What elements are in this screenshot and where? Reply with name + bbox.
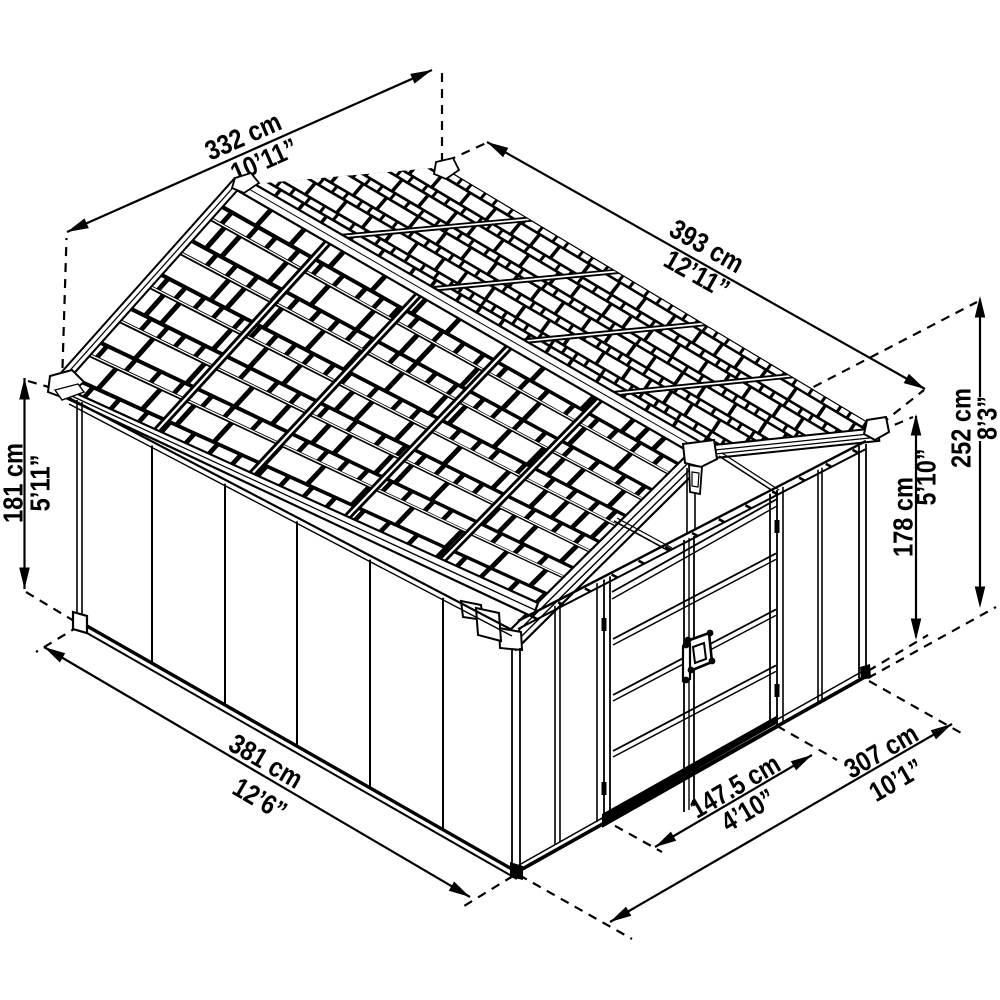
svg-text:5’10”: 5’10” [911, 449, 942, 506]
svg-text:5’11”: 5’11” [25, 455, 56, 512]
svg-text:8’3”: 8’3” [972, 396, 1000, 440]
